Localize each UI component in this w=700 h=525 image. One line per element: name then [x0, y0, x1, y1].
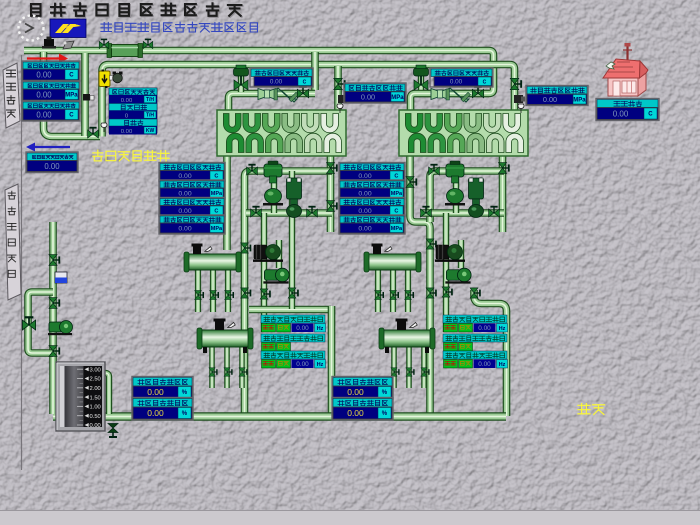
svg-text:0.00: 0.00: [36, 90, 52, 99]
svg-text:Hz: Hz: [499, 362, 506, 368]
svg-text:C: C: [303, 79, 307, 85]
svg-text:KW: KW: [146, 128, 155, 134]
svg-text:MPa: MPa: [391, 191, 403, 197]
svg-text:0.00: 0.00: [361, 93, 375, 102]
svg-text:0.00: 0.00: [543, 95, 557, 104]
svg-text:T/H: T/H: [146, 113, 154, 119]
svg-text:0.00: 0.00: [296, 361, 309, 368]
svg-text:3.00: 3.00: [90, 367, 101, 373]
svg-text:MPa: MPa: [65, 93, 78, 99]
svg-text:2.50: 2.50: [90, 377, 101, 383]
svg-text:2.00: 2.00: [90, 386, 101, 392]
svg-text:MPa: MPa: [573, 97, 586, 103]
svg-text:0.00: 0.00: [44, 162, 60, 171]
svg-text:MPa: MPa: [391, 226, 403, 232]
svg-text:0.00: 0.00: [178, 191, 191, 198]
svg-text:MPa: MPa: [391, 95, 404, 101]
svg-text:0.00: 0.00: [121, 98, 133, 104]
svg-text:Hz: Hz: [317, 326, 324, 332]
svg-text:C: C: [648, 112, 653, 118]
svg-text:0.00: 0.00: [178, 173, 191, 180]
svg-text:C: C: [394, 209, 398, 215]
svg-text:MPa: MPa: [211, 226, 223, 232]
svg-text:0.00: 0.00: [358, 208, 371, 215]
svg-text:0.00: 0.00: [36, 110, 52, 119]
svg-text:C: C: [214, 174, 218, 180]
svg-text:0.00: 0.00: [296, 325, 309, 332]
svg-text:Hz: Hz: [499, 326, 506, 332]
svg-text:1.00: 1.00: [90, 405, 101, 411]
svg-text:0.50: 0.50: [90, 414, 101, 420]
svg-text:Hz: Hz: [317, 362, 324, 368]
svg-text:0.00: 0.00: [90, 423, 101, 429]
svg-text:1.50: 1.50: [90, 395, 101, 401]
svg-text:0.00: 0.00: [450, 79, 463, 86]
svg-text:T/H: T/H: [146, 97, 154, 103]
svg-text:0.00: 0.00: [178, 226, 191, 233]
svg-text:%: %: [182, 411, 188, 417]
svg-text:0.00: 0.00: [347, 408, 364, 418]
svg-text:0.00: 0.00: [358, 173, 371, 180]
svg-text:%: %: [182, 390, 188, 396]
svg-text:0.00: 0.00: [36, 70, 52, 79]
svg-text:0.00: 0.00: [270, 79, 283, 86]
svg-text:0.00: 0.00: [121, 129, 133, 135]
svg-text:C: C: [214, 209, 218, 215]
svg-text:MPa: MPa: [211, 191, 223, 197]
svg-text:C: C: [69, 113, 74, 119]
svg-text:0.00: 0.00: [358, 191, 371, 198]
svg-text:0.00: 0.00: [147, 408, 164, 418]
svg-text:%: %: [382, 390, 388, 396]
svg-text:C: C: [483, 79, 487, 85]
svg-text:0.00: 0.00: [478, 325, 491, 332]
svg-text:0.00: 0.00: [478, 361, 491, 368]
svg-text:0.00: 0.00: [347, 387, 364, 397]
svg-text:0.00: 0.00: [147, 387, 164, 397]
svg-text:0.00: 0.00: [178, 208, 191, 215]
svg-text:C: C: [394, 174, 398, 180]
svg-text:0.00: 0.00: [613, 110, 629, 119]
svg-text:C: C: [69, 73, 74, 79]
svg-text:%: %: [382, 411, 388, 417]
svg-text:0.00: 0.00: [358, 226, 371, 233]
